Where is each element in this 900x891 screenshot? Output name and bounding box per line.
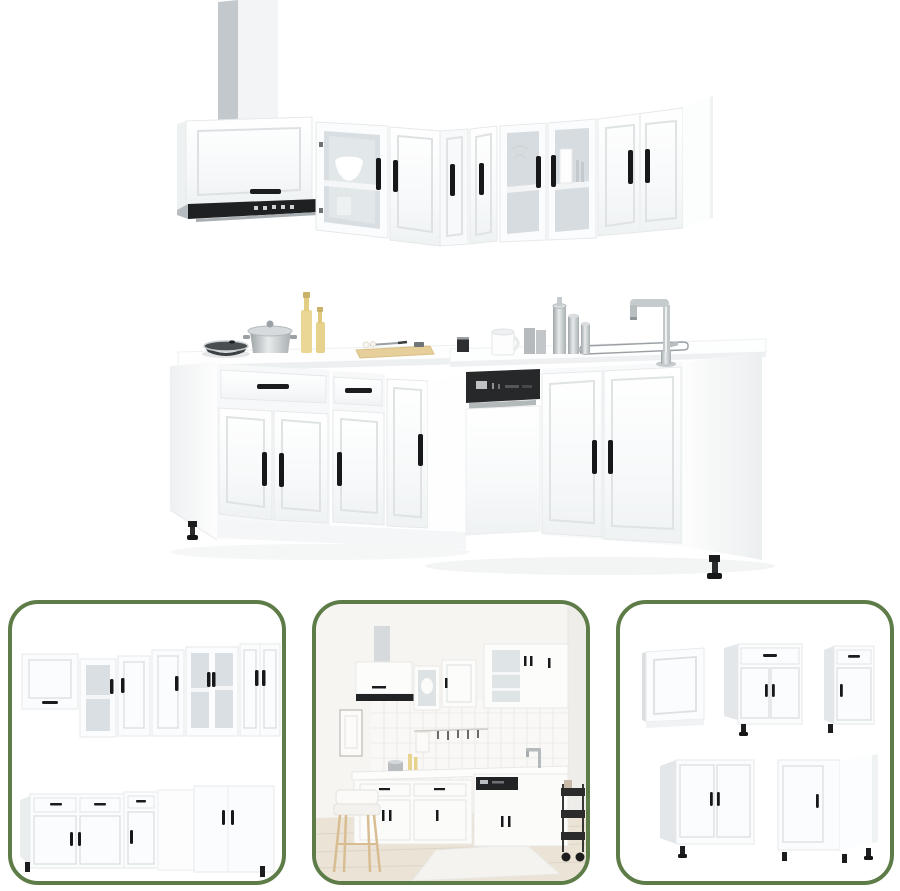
kitchen-set-illustration <box>0 0 900 597</box>
unit-end-panel <box>642 648 704 728</box>
unit-base-corner <box>778 754 878 863</box>
wall-cabinet-corner <box>440 126 497 246</box>
base-cabinet-right-side <box>683 352 762 560</box>
thumb1-wall-cabinets <box>22 644 280 737</box>
floor-shadows <box>170 544 775 575</box>
range-hood-chimney <box>218 0 278 123</box>
room-wall-frame <box>340 710 362 756</box>
unit-base-drawer-single <box>824 646 874 733</box>
thumbnail-units-illustration <box>620 604 890 881</box>
counter-accessories-left <box>202 292 434 358</box>
thumbnail-angle-view[interactable] <box>8 600 286 885</box>
thumbnail-angle-illustration <box>12 604 282 881</box>
base-cabinet-sink <box>542 362 683 546</box>
wall-cabinet-door-left <box>390 127 440 246</box>
base-cabinet-corner <box>387 377 466 532</box>
thumbnail-room-scene[interactable] <box>312 600 590 885</box>
wall-cabinet-double-right <box>598 96 713 236</box>
thumb1-base-cabinets <box>20 786 274 877</box>
unit-base-drawer-double <box>724 644 802 736</box>
thumbnail-row <box>0 597 900 885</box>
thumbnail-individual-units[interactable] <box>616 600 894 885</box>
thumbnail-room-illustration <box>316 604 586 881</box>
base-cabinet-drawer-single <box>332 371 385 525</box>
base-cabinet-drawer-double <box>217 364 330 527</box>
product-main-image[interactable] <box>0 0 900 597</box>
base-cabinet-left-side <box>170 362 217 540</box>
unit-base-sink <box>660 760 754 858</box>
wall-cabinet-glass-right <box>500 119 596 242</box>
wall-cabinet-glass-left <box>316 122 388 238</box>
dishwasher <box>466 369 540 535</box>
product-gallery-page <box>0 0 900 891</box>
range-hood-cabinet <box>177 117 312 210</box>
